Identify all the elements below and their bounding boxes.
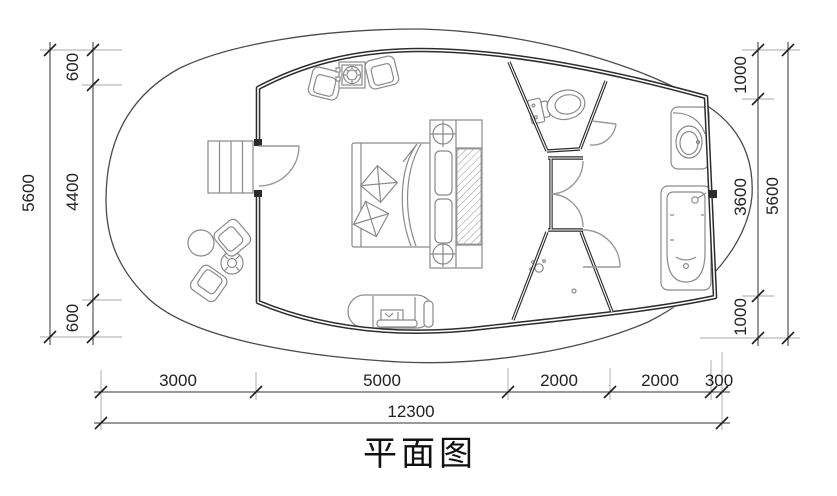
- deck-round-table: [188, 230, 214, 256]
- dim-left-600-top: 600: [63, 53, 82, 81]
- entry-steps: [208, 141, 253, 193]
- dim-bottom-2000-b: 2000: [641, 371, 679, 390]
- dim-bottom-5000: 5000: [363, 371, 401, 390]
- stove-table: [336, 62, 365, 88]
- floor-plan-page: 600 4400 600 5600 1000 3600 1000 5600 30…: [0, 0, 837, 496]
- kitchenette-unit: [348, 295, 433, 328]
- bathtub: [661, 186, 711, 290]
- dim-bottom-overall: 12300: [387, 402, 434, 421]
- dim-left-overall: 5600: [19, 174, 38, 212]
- dim-right-3600: 3600: [731, 178, 750, 216]
- dimension-bottom: 3000 5000 2000 2000 300 12300: [94, 352, 733, 430]
- dim-left-600-bottom: 600: [63, 304, 82, 332]
- dim-bottom-3000: 3000: [159, 371, 197, 390]
- door-jamb: [254, 139, 262, 146]
- washbasin: [671, 107, 709, 169]
- dim-right-1000-top: 1000: [731, 56, 750, 94]
- headboard-wardrobe: [430, 120, 482, 268]
- lounge-chair: [364, 55, 400, 90]
- page-title: 平面图: [363, 435, 477, 473]
- dim-bottom-2000-a: 2000: [540, 371, 578, 390]
- dim-right-1000-bottom: 1000: [731, 298, 750, 336]
- dim-right-overall: 5600: [763, 177, 782, 215]
- double-bed: [352, 143, 433, 247]
- dim-bottom-300: 300: [705, 371, 733, 390]
- wall-block: [709, 190, 717, 198]
- wardrobe-hanger-hatch: [457, 149, 481, 244]
- door-jamb: [254, 190, 262, 197]
- floor-plan-canvas: 600 4400 600 5600 1000 3600 1000 5600 30…: [0, 0, 837, 496]
- dim-left-4400: 4400: [63, 173, 82, 211]
